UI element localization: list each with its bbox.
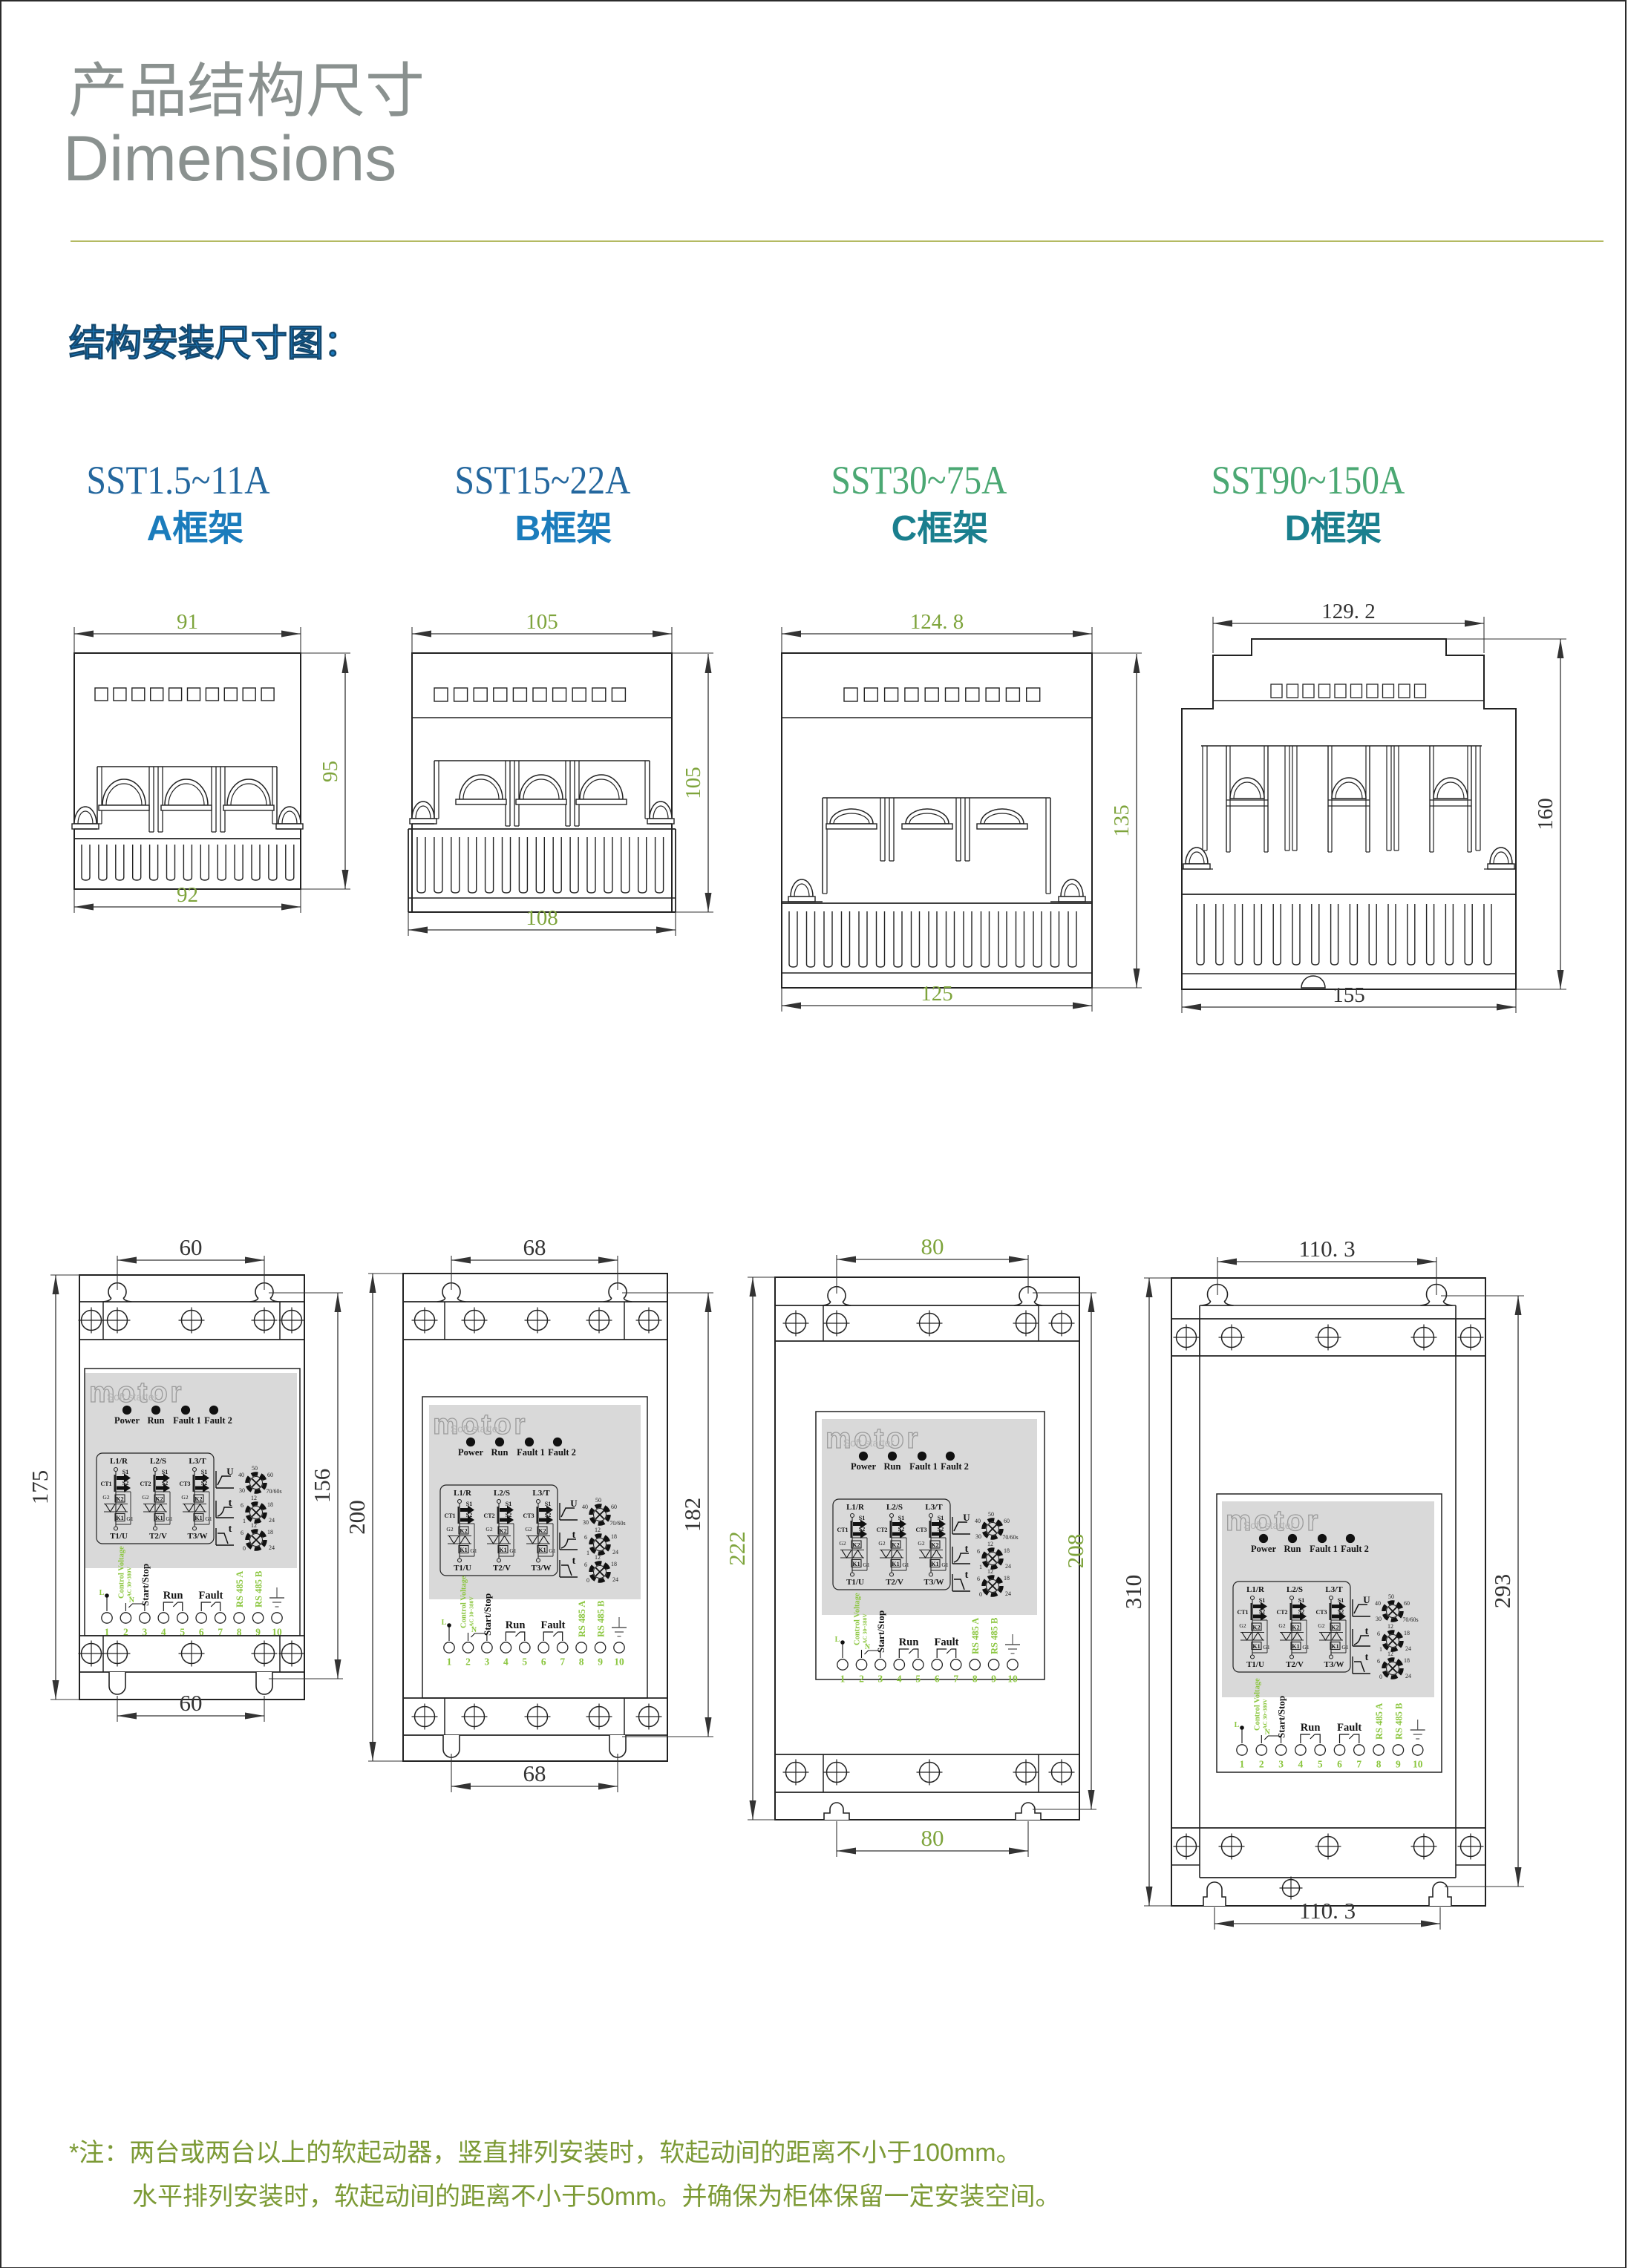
svg-text:124. 8: 124. 8 [910,610,964,634]
svg-text:1: 1 [1240,1759,1245,1770]
svg-text:3: 3 [485,1656,490,1668]
svg-text:T1/U: T1/U [454,1564,471,1573]
svg-text:K1: K1 [852,1561,860,1567]
svg-text:Start/Stop: Start/Stop [140,1564,151,1606]
svg-text:RS 485 B: RS 485 B [990,1618,1000,1654]
svg-text:24: 24 [1005,1590,1011,1597]
svg-text:S1: S1 [859,1515,865,1521]
svg-text:Fault: Fault [198,1590,223,1602]
svg-text:30: 30 [975,1533,981,1540]
svg-text:70/60s: 70/60s [1002,1534,1018,1541]
svg-text:50: 50 [595,1497,601,1504]
svg-text:50: 50 [252,1465,258,1472]
svg-text:t: t [965,1570,969,1581]
svg-text:S1: S1 [1259,1597,1265,1604]
svg-text:310: 310 [1120,1575,1146,1610]
svg-text:135: 135 [1110,804,1134,837]
svg-text:80: 80 [921,1233,944,1259]
svg-text:t: t [1365,1626,1369,1637]
svg-text:Soft starter: Soft starter [107,1391,158,1403]
svg-text:AC 30~380V: AC 30~380V [125,1567,132,1597]
svg-text:5: 5 [915,1674,921,1685]
svg-text:24: 24 [269,1517,275,1524]
svg-text:K1: K1 [1252,1643,1260,1650]
svg-text:Run: Run [1301,1722,1321,1734]
svg-text:K1: K1 [1292,1643,1299,1650]
svg-text:12: 12 [595,1554,601,1561]
svg-text:AC 30~380V: AC 30~380V [468,1596,475,1627]
svg-text:G1: G1 [902,1561,909,1568]
svg-text:CT2: CT2 [1276,1609,1287,1616]
svg-text:40: 40 [1375,1600,1381,1607]
svg-text:T2/V: T2/V [886,1578,903,1587]
svg-text:G1: G1 [1302,1644,1309,1651]
svg-text:6: 6 [1377,1658,1380,1665]
svg-text:L2/S: L2/S [886,1503,903,1512]
svg-text:G2: G2 [142,1494,148,1501]
svg-text:K2: K2 [1292,1625,1299,1631]
svg-text:CT3: CT3 [179,1481,190,1487]
svg-text:K2: K2 [538,1528,546,1535]
svg-text:L2/S: L2/S [150,1457,166,1466]
svg-text:S1: S1 [938,1515,944,1521]
svg-text:1: 1 [840,1674,846,1685]
svg-text:6: 6 [584,1534,587,1541]
svg-text:K1: K1 [155,1515,163,1521]
svg-text:12: 12 [251,1495,257,1501]
svg-text:G2: G2 [1318,1622,1324,1629]
svg-text:CT3: CT3 [915,1527,926,1533]
svg-text:0: 0 [1379,1674,1382,1680]
svg-text:K2: K2 [116,1496,123,1503]
svg-text:G1: G1 [1341,1644,1348,1651]
svg-text:6: 6 [584,1561,587,1568]
svg-text:CT3: CT3 [523,1512,534,1519]
svg-text:U: U [226,1466,234,1477]
svg-text:125: 125 [921,982,953,1006]
svg-text:T1/U: T1/U [110,1532,128,1541]
svg-text:K2: K2 [1252,1625,1260,1631]
svg-text:L: L [1235,1721,1240,1729]
svg-text:Power: Power [458,1447,483,1458]
svg-text:6: 6 [1377,1630,1380,1637]
svg-text:222: 222 [724,1531,750,1566]
svg-text:CT1: CT1 [1237,1609,1248,1616]
svg-text:105: 105 [681,767,705,799]
svg-text:7: 7 [1356,1759,1361,1770]
svg-text:6: 6 [935,1674,940,1685]
svg-text:L1/R: L1/R [1246,1585,1265,1594]
svg-text:G2: G2 [918,1540,924,1547]
svg-text:L1/R: L1/R [454,1489,472,1498]
svg-text:2: 2 [465,1656,471,1668]
svg-text:Fault 1: Fault 1 [173,1415,201,1426]
svg-text:G2: G2 [446,1526,453,1533]
svg-text:G1: G1 [549,1547,555,1554]
svg-text:AC 30~380V: AC 30~380V [862,1613,869,1644]
svg-text:K1: K1 [538,1547,546,1553]
svg-text:S1: S1 [506,1501,511,1507]
svg-text:4: 4 [897,1674,902,1685]
svg-text:Run: Run [148,1415,165,1426]
svg-text:K2: K2 [1331,1625,1338,1631]
svg-text:Fault 2: Fault 2 [204,1415,232,1426]
svg-text:Soft starter: Soft starter [451,1423,502,1435]
svg-text:t: t [572,1530,576,1541]
svg-text:L: L [442,1619,447,1627]
svg-text:K2: K2 [460,1528,467,1535]
svg-text:Fault: Fault [1337,1722,1361,1734]
svg-text:Soft starter: Soft starter [1243,1519,1295,1531]
svg-text:2: 2 [1259,1759,1264,1770]
svg-text:6: 6 [977,1576,980,1582]
svg-text:Fault 1: Fault 1 [517,1447,545,1458]
svg-text:40: 40 [238,1472,244,1478]
svg-text:0: 0 [243,1545,246,1552]
svg-text:10: 10 [614,1656,624,1668]
svg-text:4: 4 [1298,1759,1304,1770]
svg-text:9: 9 [598,1656,603,1668]
svg-text:1: 1 [979,1564,982,1570]
svg-text:S1: S1 [201,1469,207,1475]
svg-text:t: t [965,1544,969,1555]
svg-text:50: 50 [1388,1593,1394,1600]
svg-text:0: 0 [586,1577,589,1584]
svg-text:U: U [570,1498,578,1509]
svg-text:24: 24 [612,1549,618,1556]
svg-text:AC 30~380V: AC 30~380V [1261,1699,1268,1729]
svg-text:T3/W: T3/W [188,1532,208,1541]
svg-text:K2: K2 [931,1542,938,1549]
svg-text:L1/R: L1/R [846,1503,865,1512]
svg-text:S1: S1 [1338,1597,1344,1604]
svg-text:3: 3 [878,1674,883,1685]
svg-text:G2: G2 [1239,1622,1246,1629]
svg-text:T1/U: T1/U [1246,1660,1264,1669]
svg-text:Fault 2: Fault 2 [941,1461,969,1472]
svg-text:Start/Stop: Start/Stop [1276,1696,1287,1738]
svg-text:8: 8 [579,1656,584,1668]
svg-text:8: 8 [1376,1759,1382,1770]
svg-text:Fault 1: Fault 1 [909,1461,938,1472]
svg-text:RS 485 A: RS 485 A [1374,1703,1385,1740]
svg-text:24: 24 [1405,1673,1411,1679]
svg-text:t: t [1365,1652,1369,1663]
svg-text:Soft starter: Soft starter [843,1437,895,1449]
svg-text:K1: K1 [460,1547,467,1553]
svg-text:K1: K1 [931,1561,938,1567]
svg-text:RS 485 B: RS 485 B [596,1601,607,1637]
svg-text:T3/W: T3/W [924,1578,944,1587]
svg-text:L2/S: L2/S [494,1489,510,1498]
svg-text:30: 30 [239,1487,245,1494]
svg-text:Fault: Fault [934,1636,958,1648]
svg-text:60: 60 [267,1472,273,1478]
svg-text:K1: K1 [1331,1643,1338,1650]
svg-text:G1: G1 [941,1561,948,1568]
svg-text:12: 12 [595,1527,601,1533]
svg-text:G2: G2 [839,1540,846,1547]
svg-text:Control Voltage: Control Voltage [854,1593,862,1645]
svg-text:G1: G1 [126,1515,133,1522]
svg-text:60: 60 [1004,1518,1010,1524]
svg-text:18: 18 [611,1561,617,1567]
svg-text:18: 18 [267,1529,273,1536]
svg-text:156: 156 [309,1469,335,1504]
svg-text:6: 6 [241,1502,243,1509]
svg-text:G1: G1 [166,1515,172,1522]
svg-text:5: 5 [522,1656,527,1668]
svg-text:S1: S1 [466,1501,472,1507]
svg-text:293: 293 [1489,1574,1515,1609]
svg-text:1: 1 [243,1518,246,1524]
svg-text:1: 1 [447,1656,452,1668]
svg-text:G2: G2 [102,1494,109,1501]
svg-text:T3/W: T3/W [1324,1660,1344,1669]
svg-text:200: 200 [344,1500,370,1535]
svg-text:Control Voltage: Control Voltage [117,1546,125,1599]
svg-text:Run: Run [1284,1544,1301,1554]
svg-text:t: t [229,1524,232,1535]
svg-text:K2: K2 [892,1542,899,1549]
svg-text:CT3: CT3 [1315,1609,1327,1616]
svg-text:18: 18 [1404,1630,1410,1636]
svg-text:129. 2: 129. 2 [1321,600,1376,623]
svg-text:30: 30 [1376,1616,1382,1622]
svg-text:8: 8 [972,1674,978,1685]
svg-text:RS 485 A: RS 485 A [235,1571,245,1607]
svg-text:6: 6 [241,1530,243,1536]
svg-text:50: 50 [988,1511,994,1518]
svg-text:9: 9 [991,1674,996,1685]
svg-text:L: L [835,1636,840,1644]
svg-text:Fault 2: Fault 2 [548,1447,576,1458]
svg-text:Power: Power [114,1415,140,1426]
svg-text:60: 60 [1404,1600,1410,1607]
svg-text:L: L [99,1589,105,1597]
svg-text:40: 40 [582,1504,588,1510]
svg-text:Run: Run [884,1461,901,1472]
svg-text:7: 7 [953,1674,958,1685]
svg-text:40: 40 [975,1518,981,1524]
svg-text:208: 208 [1062,1534,1088,1569]
svg-text:Run: Run [506,1619,526,1631]
svg-text:G1: G1 [1263,1644,1269,1651]
svg-text:G1: G1 [509,1547,516,1554]
svg-text:CT1: CT1 [100,1481,111,1487]
svg-text:12: 12 [987,1568,993,1575]
svg-text:6: 6 [541,1656,546,1668]
svg-text:110. 3: 110. 3 [1298,1236,1355,1262]
svg-text:6: 6 [977,1548,980,1555]
svg-text:S1: S1 [122,1469,128,1475]
svg-text:G1: G1 [863,1561,869,1568]
svg-text:18: 18 [1404,1657,1410,1664]
svg-text:t: t [572,1556,576,1567]
svg-text:18: 18 [267,1501,273,1508]
svg-text:6: 6 [1337,1759,1342,1770]
svg-text:155: 155 [1333,983,1365,1007]
svg-text:24: 24 [612,1576,618,1583]
svg-text:S1: S1 [898,1515,904,1521]
svg-text:K2: K2 [155,1496,163,1503]
svg-text:L3/T: L3/T [532,1489,550,1498]
svg-text:0: 0 [979,1591,982,1598]
svg-text:Control Voltage: Control Voltage [1253,1678,1261,1731]
svg-text:18: 18 [1004,1575,1010,1582]
svg-text:1: 1 [586,1550,589,1556]
svg-text:95: 95 [318,761,342,782]
svg-text:G1: G1 [470,1547,477,1554]
svg-text:CT1: CT1 [444,1512,455,1519]
svg-text:CT2: CT2 [876,1527,887,1533]
svg-text:Run: Run [899,1636,919,1648]
svg-text:18: 18 [611,1533,617,1540]
svg-text:L3/T: L3/T [1325,1585,1343,1594]
svg-text:105: 105 [526,610,558,634]
svg-text:K1: K1 [116,1515,123,1521]
svg-text:10: 10 [1007,1674,1018,1685]
svg-text:175: 175 [27,1470,53,1505]
svg-text:110. 3: 110. 3 [1299,1898,1356,1924]
svg-text:12: 12 [251,1522,257,1529]
svg-text:L2/S: L2/S [1287,1585,1303,1594]
svg-text:Fault 1: Fault 1 [1310,1544,1338,1554]
svg-text:68: 68 [523,1760,546,1786]
svg-text:G2: G2 [1278,1622,1285,1629]
svg-text:92: 92 [177,883,198,907]
svg-text:70/60s: 70/60s [266,1488,281,1495]
svg-text:G1: G1 [205,1515,212,1522]
svg-text:K1: K1 [499,1547,506,1553]
svg-text:T2/V: T2/V [149,1532,167,1541]
svg-text:24: 24 [269,1544,275,1551]
svg-text:K2: K2 [852,1542,860,1549]
svg-text:91: 91 [177,610,198,634]
svg-text:Fault: Fault [540,1619,565,1631]
svg-text:S1: S1 [545,1501,551,1507]
svg-text:Start/Stop: Start/Stop [482,1593,493,1636]
svg-text:60: 60 [611,1504,617,1510]
svg-text:Run: Run [491,1447,509,1458]
svg-text:4: 4 [503,1656,509,1668]
svg-text:7: 7 [560,1656,565,1668]
svg-text:RS 485 A: RS 485 A [577,1601,587,1637]
svg-text:T2/V: T2/V [1286,1660,1304,1669]
svg-text:24: 24 [1005,1563,1011,1570]
svg-text:K2: K2 [499,1528,506,1535]
svg-text:U: U [963,1512,970,1523]
svg-text:RS 485 B: RS 485 B [254,1571,264,1607]
svg-text:S1: S1 [162,1469,168,1475]
svg-text:CT2: CT2 [483,1512,494,1519]
svg-text:18: 18 [1004,1547,1010,1554]
svg-text:T2/V: T2/V [493,1564,511,1573]
svg-text:1: 1 [1379,1646,1382,1653]
svg-text:160: 160 [1534,798,1557,830]
svg-text:RS 485 A: RS 485 A [970,1618,981,1654]
svg-text:G2: G2 [878,1540,885,1547]
svg-text:G2: G2 [486,1526,492,1533]
svg-text:Control Voltage: Control Voltage [460,1576,468,1628]
svg-text:Start/Stop: Start/Stop [875,1610,886,1653]
svg-text:12: 12 [987,1541,993,1547]
svg-text:G2: G2 [525,1526,532,1533]
svg-text:L3/T: L3/T [189,1457,206,1466]
svg-text:70/60s: 70/60s [1402,1616,1418,1623]
svg-text:G2: G2 [181,1494,188,1501]
svg-text:60: 60 [180,1234,203,1260]
svg-text:K1: K1 [194,1515,202,1521]
svg-text:K2: K2 [194,1496,202,1503]
svg-text:108: 108 [526,906,558,930]
svg-text:CT1: CT1 [837,1527,848,1533]
svg-text:Fault 2: Fault 2 [1341,1544,1369,1554]
svg-text:70/60s: 70/60s [609,1520,625,1527]
svg-text:24: 24 [1405,1645,1411,1652]
svg-text:2: 2 [859,1674,864,1685]
svg-text:5: 5 [1318,1759,1323,1770]
svg-text:K1: K1 [892,1561,899,1567]
svg-text:U: U [1363,1594,1370,1605]
svg-text:L1/R: L1/R [110,1457,128,1466]
svg-text:12: 12 [1387,1623,1393,1630]
svg-text:68: 68 [523,1234,546,1260]
svg-text:60: 60 [180,1690,203,1716]
svg-text:3: 3 [1278,1759,1284,1770]
svg-text:12: 12 [1387,1651,1393,1657]
svg-text:S1: S1 [1298,1597,1304,1604]
svg-text:RS 485 B: RS 485 B [1393,1703,1404,1740]
svg-text:9: 9 [1396,1759,1401,1770]
svg-text:30: 30 [583,1519,589,1526]
svg-text:Power: Power [851,1461,876,1472]
svg-text:Power: Power [1251,1544,1276,1554]
svg-text:L3/T: L3/T [925,1503,943,1512]
svg-text:182: 182 [679,1498,705,1533]
svg-text:Run: Run [163,1590,183,1602]
svg-text:10: 10 [1413,1759,1423,1770]
svg-text:t: t [229,1498,232,1509]
svg-text:T1/U: T1/U [846,1578,864,1587]
svg-text:CT2: CT2 [140,1481,151,1487]
svg-text:80: 80 [921,1825,944,1851]
svg-text:T3/W: T3/W [532,1564,552,1573]
